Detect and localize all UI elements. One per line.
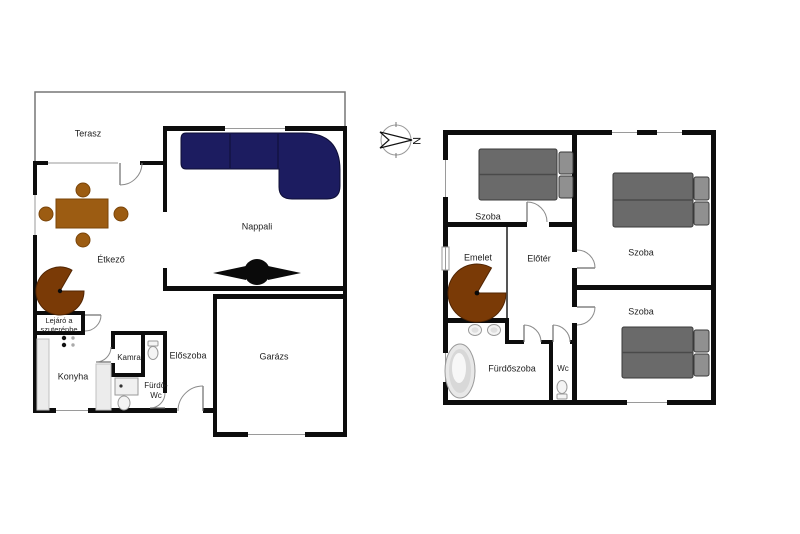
ground-floor-plan: Terasz Nappali Étkező Lejáró a szuterénb…: [33, 92, 347, 437]
floor-plan-drawing: Terasz Nappali Étkező Lejáró a szuterénb…: [0, 0, 800, 534]
door-arc: [178, 386, 203, 411]
compass: N: [380, 122, 422, 158]
room-label-landing: Emelet: [464, 252, 493, 262]
compass-north-label: N: [410, 137, 422, 145]
room-label-bedroom-3: Szoba: [628, 306, 654, 316]
room-label-terrace: Terasz: [75, 128, 102, 138]
chair-icon: [39, 207, 53, 221]
door-arc: [527, 202, 547, 222]
toilet-icon: [118, 396, 130, 410]
room-label-bedroom-1: Szoba: [475, 211, 501, 221]
chair-icon: [114, 207, 128, 221]
spiral-staircase-icon: [36, 267, 84, 315]
room-label-pantry: Kamra: [117, 353, 141, 362]
sink-icon: [488, 325, 501, 336]
double-bed-icon: [622, 327, 709, 378]
room-label-garage: Garázs: [259, 351, 289, 361]
sofa-icon: [181, 133, 340, 199]
room-label-wc: Wc: [557, 364, 569, 373]
chair-icon: [76, 183, 90, 197]
door-arc: [524, 325, 541, 342]
sink-icon: [469, 325, 482, 336]
door-arc: [96, 347, 111, 362]
dining-table-icon: [39, 183, 128, 247]
floor-plan-canvas: Terasz Nappali Étkező Lejáró a szuterénb…: [0, 0, 800, 534]
door-arc: [553, 325, 570, 342]
room-label-bath-wc: Fürdő-: [144, 381, 168, 390]
room-label-foyer: Előtér: [527, 253, 551, 263]
spiral-staircase-icon: [448, 264, 506, 322]
upper-floor-plan: Szoba Szoba Szoba Emelet Előtér Fürdőszo…: [442, 130, 716, 405]
toilet-icon: [557, 381, 567, 400]
door-arc: [120, 163, 142, 185]
room-label-dining: Étkező: [97, 254, 125, 264]
room-label-basement-stairs: szuterénbe: [40, 325, 77, 334]
north-arrow-icon: [380, 132, 412, 148]
ceiling-fan-icon: [213, 259, 301, 285]
bathtub-icon: [445, 344, 475, 398]
door-arc: [577, 250, 595, 268]
room-label-hallway: Előszoba: [169, 350, 206, 360]
door-arc: [85, 315, 101, 331]
room-label-kitchen: Konyha: [58, 371, 89, 381]
room-label-bathroom: Fürdőszoba: [488, 363, 536, 373]
double-bed-icon: [613, 173, 709, 227]
room-label-bath-wc: Wc: [150, 391, 162, 400]
washing-machine-icon: [115, 378, 138, 395]
chair-icon: [76, 233, 90, 247]
room-label-bedroom-2: Szoba: [628, 247, 654, 257]
door-arc: [577, 307, 595, 325]
stove-icon: [62, 336, 75, 347]
room-label-living: Nappali: [242, 221, 273, 231]
room-label-basement-stairs: Lejáró a: [45, 316, 73, 325]
toilet-icon: [148, 341, 158, 360]
double-bed-icon: [479, 149, 573, 200]
